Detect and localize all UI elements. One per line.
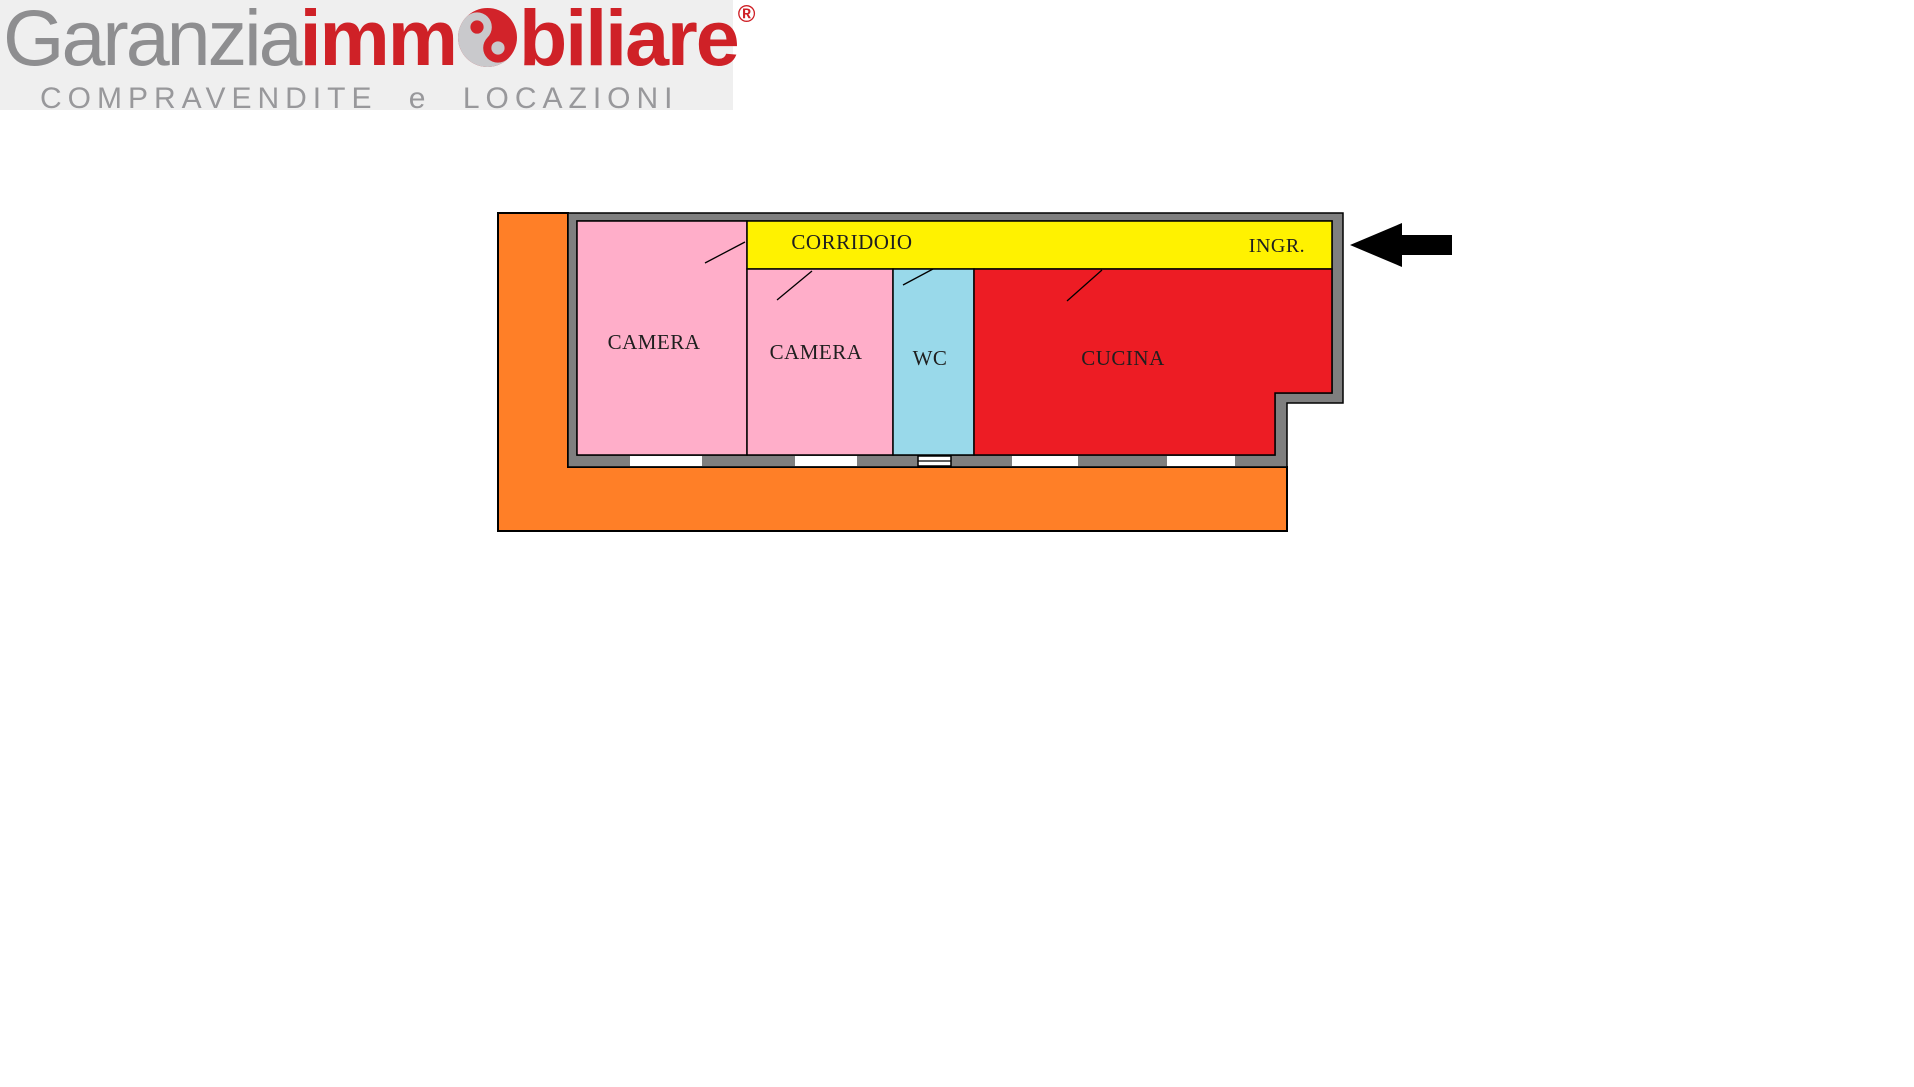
label-wc: WC	[913, 346, 948, 370]
window	[795, 456, 857, 466]
registered-trademark-icon: ®	[738, 0, 756, 30]
brand-logo: Garanzia imm biliare ®	[3, 0, 755, 84]
brand-name-red-suffix: biliare	[519, 0, 738, 84]
label-camera-1: CAMERA	[608, 330, 701, 354]
label-camera-2: CAMERA	[770, 340, 863, 364]
logo-panel: Garanzia imm biliare ® COMPRAVENDITE e L…	[0, 0, 733, 110]
floorplan: CAMERA CAMERA WC CUCINA CORRIDOIO INGR.	[488, 203, 1468, 543]
brand-mark-icon	[457, 7, 518, 68]
window	[1012, 456, 1078, 466]
brand-name-gray: Garanzia	[3, 0, 300, 84]
entrance-arrow-icon	[1350, 223, 1452, 267]
brand-tagline: COMPRAVENDITE e LOCAZIONI	[40, 82, 679, 116]
brand-name-red-prefix: imm	[300, 0, 456, 84]
label-corridoio: CORRIDOIO	[791, 230, 912, 254]
label-cucina: CUCINA	[1081, 346, 1165, 370]
window	[630, 456, 702, 466]
window	[1167, 456, 1235, 466]
window-wc	[918, 456, 951, 466]
label-ingresso: INGR.	[1249, 235, 1305, 257]
